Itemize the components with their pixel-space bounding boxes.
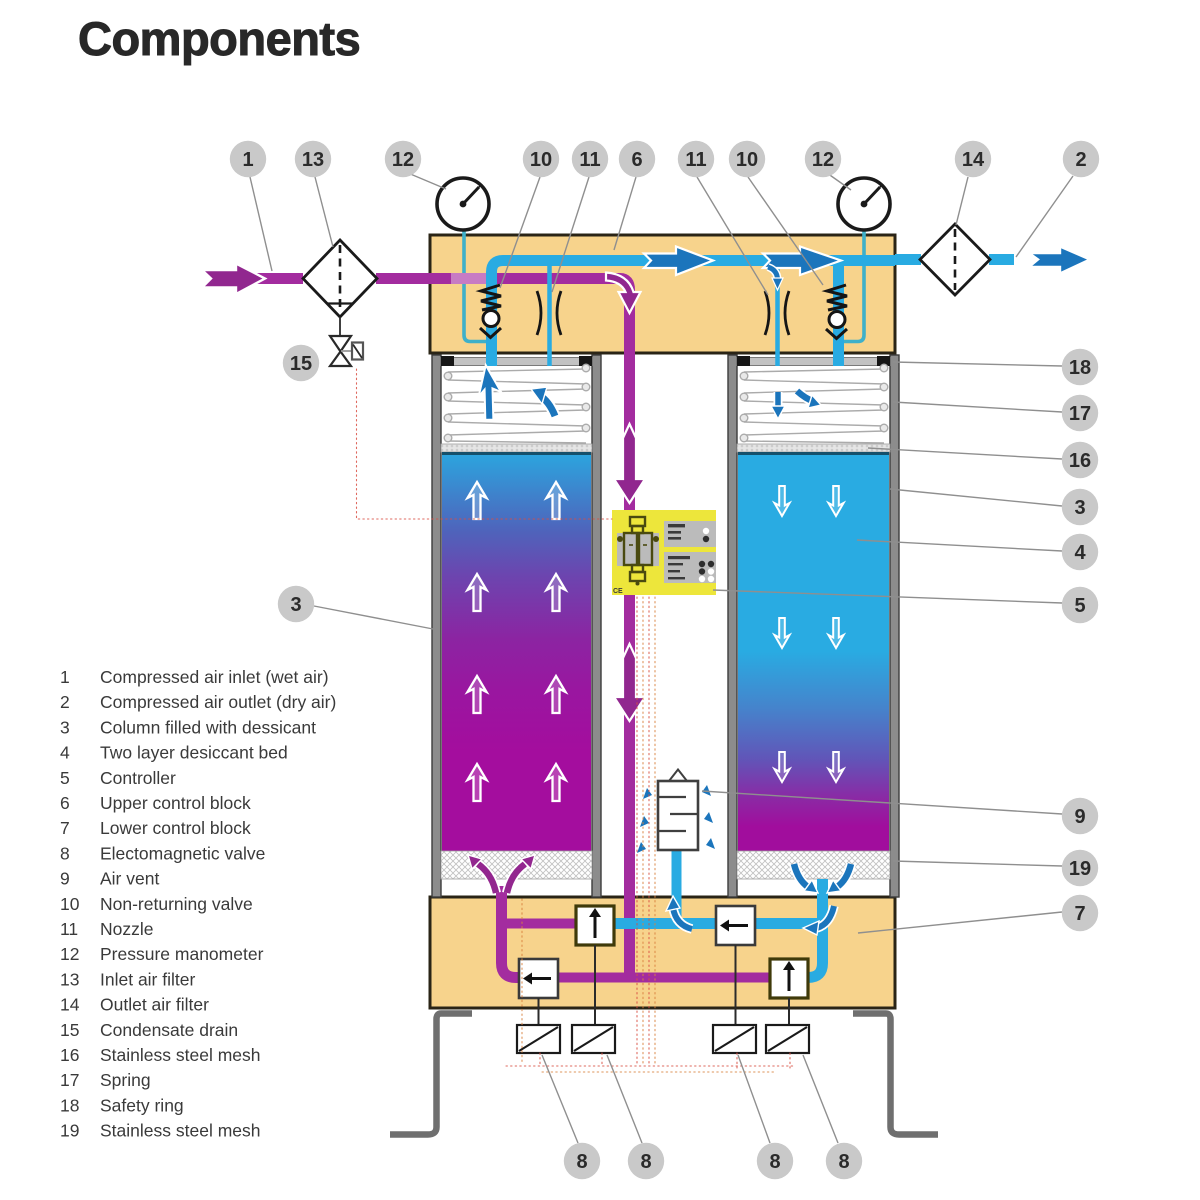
svg-text:Spring: Spring: [100, 1070, 151, 1090]
svg-text:1: 1: [242, 149, 253, 171]
svg-text:12: 12: [60, 944, 79, 964]
svg-text:Column filled with dessicant: Column filled with dessicant: [100, 717, 316, 737]
svg-text:Inlet air filter: Inlet air filter: [100, 969, 195, 989]
svg-text:8: 8: [576, 1151, 587, 1173]
svg-text:14: 14: [962, 149, 985, 171]
svg-text:5: 5: [60, 768, 70, 788]
svg-text:2: 2: [60, 692, 70, 712]
svg-text:11: 11: [60, 919, 78, 939]
svg-text:18: 18: [60, 1095, 79, 1115]
svg-text:Upper control block: Upper control block: [100, 793, 251, 813]
svg-text:3: 3: [1074, 497, 1085, 519]
svg-text:CE: CE: [613, 588, 623, 595]
svg-text:7: 7: [1074, 903, 1085, 925]
svg-text:17: 17: [1069, 403, 1091, 425]
svg-text:12: 12: [812, 149, 834, 171]
svg-text:Outlet air filter: Outlet air filter: [100, 995, 209, 1015]
svg-text:Pressure manometer: Pressure manometer: [100, 944, 264, 964]
svg-text:14: 14: [60, 995, 80, 1015]
svg-text:4: 4: [60, 743, 70, 763]
svg-text:19: 19: [1069, 858, 1091, 880]
svg-text:6: 6: [60, 793, 70, 813]
svg-text:13: 13: [302, 149, 324, 171]
svg-text:11: 11: [685, 149, 706, 171]
svg-text:Condensate drain: Condensate drain: [100, 1020, 238, 1040]
svg-text:7: 7: [60, 818, 70, 838]
svg-text:12: 12: [392, 149, 414, 171]
svg-text:13: 13: [60, 969, 79, 989]
svg-text:Nozzle: Nozzle: [100, 919, 154, 939]
svg-text:6: 6: [631, 149, 642, 171]
svg-text:9: 9: [1074, 806, 1085, 828]
svg-text:2: 2: [1075, 149, 1086, 171]
svg-text:18: 18: [1069, 357, 1091, 379]
svg-text:4: 4: [1074, 542, 1086, 564]
svg-text:8: 8: [838, 1151, 849, 1173]
svg-text:3: 3: [290, 594, 301, 616]
svg-text:Stainless steel mesh: Stainless steel mesh: [100, 1121, 261, 1141]
svg-text:Safety ring: Safety ring: [100, 1095, 184, 1115]
svg-text:Components: Components: [78, 12, 360, 65]
svg-text:19: 19: [60, 1121, 79, 1141]
svg-text:10: 10: [60, 894, 80, 914]
svg-text:Non-returning valve: Non-returning valve: [100, 894, 253, 914]
svg-text:11: 11: [579, 149, 600, 171]
svg-text:16: 16: [1069, 450, 1091, 472]
svg-text:17: 17: [60, 1070, 79, 1090]
svg-text:10: 10: [736, 149, 758, 171]
svg-text:Air vent: Air vent: [100, 869, 159, 889]
svg-text:Electomagnetic valve: Electomagnetic valve: [100, 843, 265, 863]
svg-text:1: 1: [60, 667, 70, 687]
svg-text:16: 16: [60, 1045, 79, 1065]
svg-text:Compressed air outlet (dry air: Compressed air outlet (dry air): [100, 692, 336, 712]
svg-text:15: 15: [290, 353, 312, 375]
svg-text:8: 8: [60, 843, 70, 863]
svg-text:Two layer desiccant bed: Two layer desiccant bed: [100, 743, 288, 763]
svg-text:5: 5: [1074, 595, 1085, 617]
svg-text:9: 9: [60, 869, 70, 889]
svg-text:Stainless steel mesh: Stainless steel mesh: [100, 1045, 261, 1065]
svg-text:Lower control block: Lower control block: [100, 818, 251, 838]
svg-text:Controller: Controller: [100, 768, 176, 788]
svg-text:10: 10: [530, 149, 552, 171]
svg-text:3: 3: [60, 717, 70, 737]
svg-text:Compressed air inlet (wet air): Compressed air inlet (wet air): [100, 667, 329, 687]
svg-text:15: 15: [60, 1020, 79, 1040]
svg-text:8: 8: [640, 1151, 651, 1173]
svg-text:8: 8: [769, 1151, 780, 1173]
